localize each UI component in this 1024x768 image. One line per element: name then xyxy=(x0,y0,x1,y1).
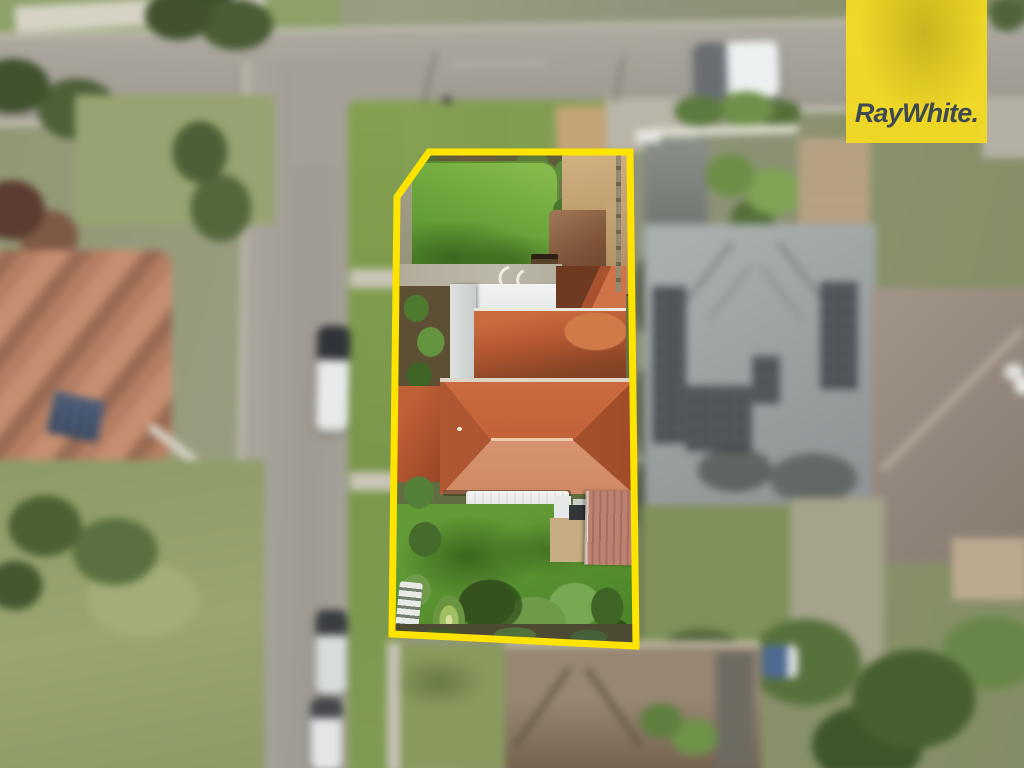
bottom-left-trees xyxy=(0,475,175,645)
neighbor-white-object xyxy=(636,130,660,143)
bottom-right-trees xyxy=(728,588,1024,768)
agency-logo: RayWhite. xyxy=(846,0,987,143)
logo-text: RayWhite. xyxy=(846,98,987,129)
bottom-verge-grass xyxy=(400,644,510,768)
top-right-trees xyxy=(984,0,1024,46)
blue-car xyxy=(762,645,798,678)
main-hip-roof xyxy=(440,382,636,494)
aerial-property-photo: RayWhite. xyxy=(0,0,1024,768)
solar-panel-array xyxy=(652,286,686,444)
roof-gutter xyxy=(440,378,636,382)
parked-car-2 xyxy=(311,698,342,768)
white-flat-roof-left xyxy=(450,284,476,390)
left-tree-cluster-b xyxy=(158,110,263,250)
side-fence-line xyxy=(616,154,621,292)
utility-box-dark xyxy=(569,505,586,520)
driveway-crossover xyxy=(556,106,607,157)
parked-car-1 xyxy=(316,610,347,694)
right-tree-cluster-b xyxy=(862,128,1024,230)
top-left-trees xyxy=(135,0,280,65)
far-right-taupe-house xyxy=(872,288,1024,563)
right-pavers xyxy=(798,138,870,236)
roof-vent xyxy=(457,427,462,431)
far-right-white-objects xyxy=(1002,358,1024,398)
kerb-object xyxy=(442,96,452,104)
solar-panel-array xyxy=(752,356,780,404)
verge-concrete-crossing-1 xyxy=(350,269,400,288)
rear-garage-roof xyxy=(584,491,635,566)
roof-ridge-line xyxy=(491,438,573,441)
white-van-side-road xyxy=(316,326,350,433)
solar-panel-array xyxy=(820,282,858,390)
bottom-shrubs xyxy=(628,688,723,768)
